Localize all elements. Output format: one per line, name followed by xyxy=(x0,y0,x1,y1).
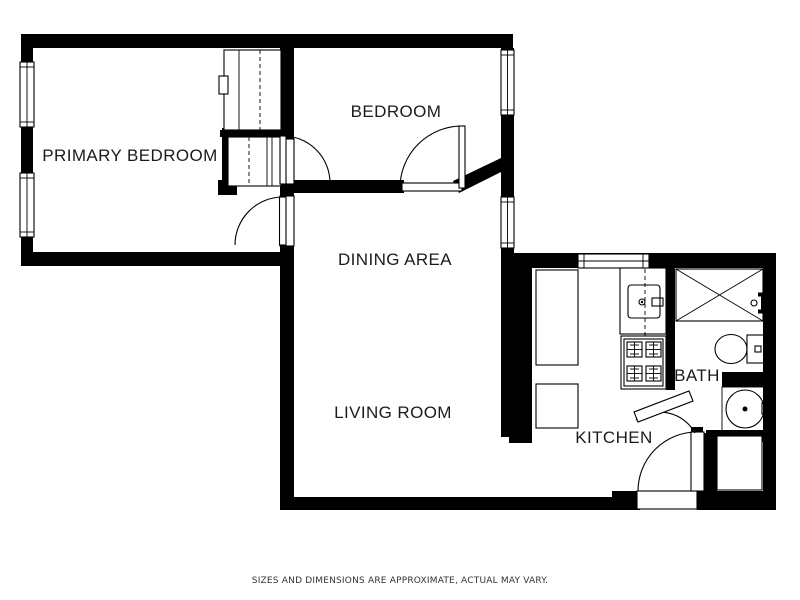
room-label-kitchen: KITCHEN xyxy=(575,428,652,447)
wall-segment xyxy=(612,491,640,497)
wall-segment xyxy=(280,497,640,510)
window xyxy=(501,50,514,115)
wall-segment xyxy=(501,253,532,443)
primary-bedroom-door xyxy=(235,197,286,245)
wall-segment xyxy=(21,252,294,266)
window xyxy=(20,173,34,237)
window xyxy=(501,197,514,248)
wall-segment xyxy=(220,130,281,137)
room-label-living: LIVING ROOM xyxy=(334,403,452,422)
room-label-bath: BATH xyxy=(674,366,720,385)
kitchen-counter xyxy=(620,268,666,334)
window-pass-through xyxy=(578,254,649,268)
room-labels: PRIMARY BEDROOM BEDROOM DINING AREA LIVI… xyxy=(42,102,720,447)
wall-notch xyxy=(501,437,509,443)
room-label-dining: DINING AREA xyxy=(338,250,452,269)
wall-segment xyxy=(722,372,776,387)
wall-segment xyxy=(294,180,404,193)
kitchen-counter xyxy=(536,270,578,365)
disclaimer-text: SIZES AND DIMENSIONS ARE APPROXIMATE, AC… xyxy=(252,576,548,586)
wall-segment xyxy=(280,245,294,510)
stove xyxy=(621,336,666,389)
kitchen-fixtures xyxy=(536,268,666,428)
kitchen-counter xyxy=(536,384,578,428)
wall-segment xyxy=(21,34,513,48)
entry-closet xyxy=(717,436,762,490)
bedroom-door xyxy=(400,126,465,188)
pedestal-sink xyxy=(722,387,771,431)
bath-door xyxy=(634,391,695,433)
room-label-primary-bedroom: PRIMARY BEDROOM xyxy=(42,146,217,165)
shower xyxy=(676,269,766,321)
closet xyxy=(228,137,281,186)
window xyxy=(20,62,34,127)
wall-segment xyxy=(697,491,776,510)
wall-segment xyxy=(704,433,717,491)
floor-plan-page: PRIMARY BEDROOM BEDROOM DINING AREA LIVI… xyxy=(0,0,800,600)
floor-plan: PRIMARY BEDROOM BEDROOM DINING AREA LIVI… xyxy=(0,0,800,600)
bath-fixtures xyxy=(676,269,771,431)
door-opening xyxy=(637,491,697,509)
closet xyxy=(219,50,281,130)
door-opening xyxy=(402,183,462,191)
room-label-bedroom: BEDROOM xyxy=(351,102,442,121)
closets xyxy=(219,50,762,490)
toilet xyxy=(715,335,765,364)
